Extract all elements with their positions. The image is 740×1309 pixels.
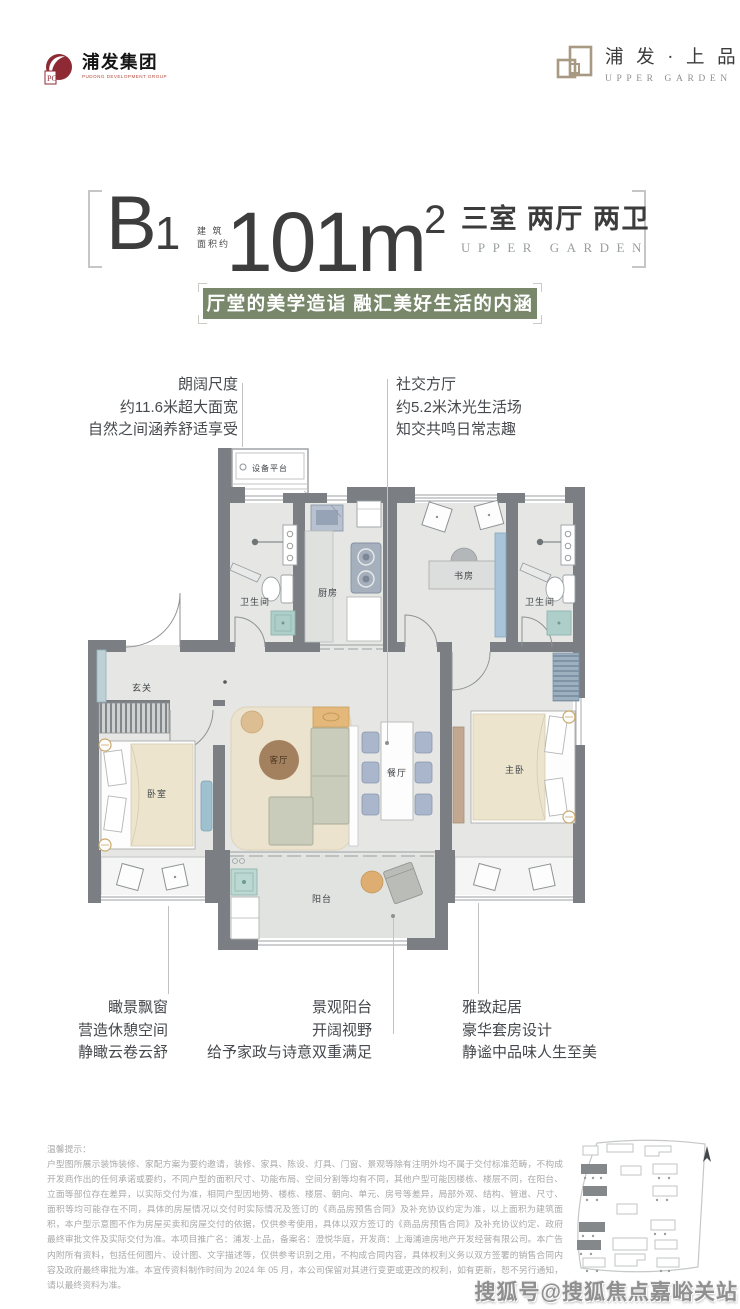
project-logo-icon (556, 45, 594, 85)
developer-logo: PG 浦发集团 PUDONG DEVELOPMENT GROUP (40, 52, 167, 88)
room-label-master: 主卧 (505, 764, 525, 775)
room-living: 客厅 (231, 707, 358, 850)
room-label-dining: 餐厅 (387, 767, 407, 778)
banner-corner (533, 315, 542, 324)
disclaimer-title: 温馨提示： (47, 1142, 563, 1157)
svg-text:PG: PG (47, 74, 57, 83)
callout-top-right: 社交方厅 约5.2米沐光生活场 知交共鸣日常志趣 (396, 374, 522, 442)
banner-corner (198, 315, 207, 324)
leader-line (168, 906, 169, 994)
room-label-bedroom: 卧室 (147, 788, 167, 799)
room-label-equipment: 设备平台 (252, 463, 288, 473)
title-bracket-left (88, 190, 102, 268)
disclaimer-body: 户型图所展示装饰装修、家配方案为要约邀请，装修、家具、陈设、灯具、门窗、景观等除… (47, 1157, 563, 1293)
project-logo: 浦 发 · 上 品 UPPER GARDEN (556, 45, 740, 85)
leader-line (393, 918, 394, 1034)
room-label-kitchen: 厨房 (318, 587, 338, 598)
project-logo-title: 浦 发 · 上 品 (605, 47, 740, 69)
poster-page: PG 浦发集团 PUDONG DEVELOPMENT GROUP 浦 发 · 上… (0, 0, 740, 1309)
developer-logo-title: 浦发集团 (82, 52, 167, 72)
room-label-living: 客厅 (269, 755, 288, 765)
leader-dot (385, 741, 389, 745)
callout-top-left: 朗阔尺度 约11.6米超大面宽 自然之间涵养舒适享受 (88, 374, 238, 442)
room-label-balcony: 阳台 (312, 893, 332, 904)
site-boundary (578, 1140, 705, 1272)
unit-code: B1 (106, 184, 178, 285)
area-value: 101m2 (226, 176, 446, 286)
banner-corner (198, 283, 207, 292)
leader-line (478, 903, 479, 994)
slogan-text: 厅堂的美学造诣 融汇美好生活的内涵 (207, 293, 534, 314)
slogan-banner: 厅堂的美学造诣 融汇美好生活的内涵 (203, 288, 537, 319)
site-plan (557, 1136, 733, 1282)
callout-bottom-right: 雅致起居 豪华套房设计 静谧中品味人生至美 (462, 997, 597, 1065)
leader-line (242, 383, 243, 447)
room-label-bathroom-left: 卫生间 (240, 596, 270, 607)
disclaimer: 温馨提示： 户型图所展示装饰装修、家配方案为要约邀请，装修、家具、陈设、灯具、门… (47, 1142, 563, 1293)
room-label-foyer: 玄关 (132, 682, 152, 693)
room-label-bathroom-right: 卫生间 (525, 596, 555, 607)
floor-plan: 设备平台 (85, 445, 665, 965)
developer-logo-icon: PG (40, 52, 76, 88)
leader-dot (391, 914, 395, 918)
room-dining: 餐厅 (362, 722, 432, 820)
banner-corner (533, 283, 542, 292)
callout-bottom-left: 瞰景飘窗 营造休憩空间 静瞰云卷云舒 (78, 997, 168, 1065)
leader-line (387, 379, 388, 743)
layout-subtext: UPPER GARDEN (461, 240, 649, 256)
room-label-study: 书房 (454, 570, 474, 581)
watermark: 搜狐号@搜狐焦点嘉峪关站 (475, 1276, 738, 1306)
callout-bottom-center: 景观阳台 开阔视野 给予家政与诗意双重满足 (207, 997, 372, 1065)
project-logo-subtitle: UPPER GARDEN (605, 74, 740, 84)
layout-text: 三室 两厅 两卫 (461, 197, 650, 236)
developer-logo-subtitle: PUDONG DEVELOPMENT GROUP (82, 74, 167, 79)
